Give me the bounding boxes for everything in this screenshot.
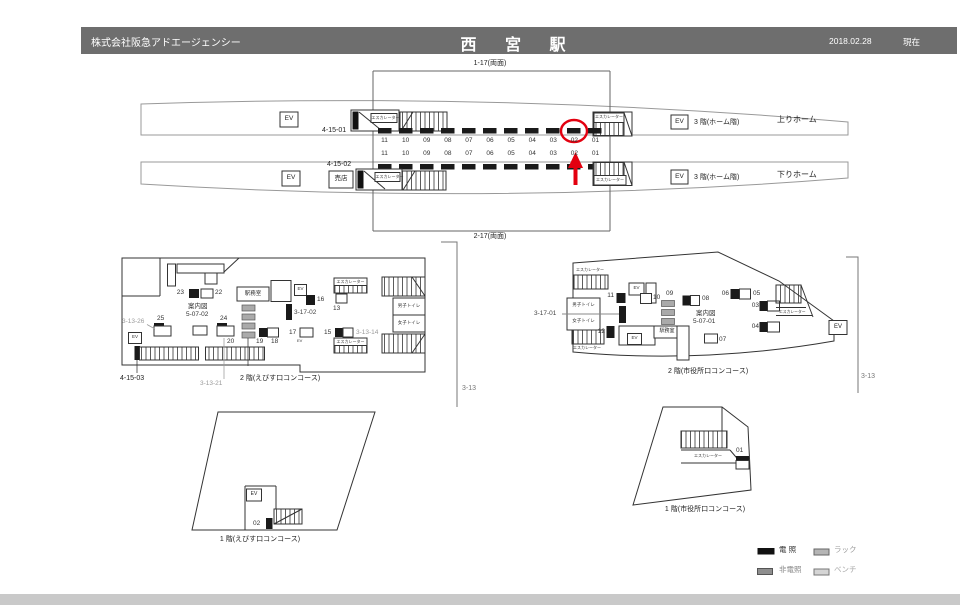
ebisu1f-stairs [274,509,302,524]
up-escalator-id: 4-15-01 [322,127,346,135]
down-escalator-id: 4-15-02 [327,161,351,169]
shiyakusho1f-escalator-label: エスカレーター [688,454,728,458]
down-escalator-tiny-label: エスカレーター [376,175,400,179]
ref-3-17-02: 3-17-02 [294,309,316,316]
panel-down-07 [462,164,476,170]
position-06: 06 [716,290,729,297]
shiyakusho2f-guide-map-id: 5-07-01 [693,318,715,325]
kiosk-label: 売店 [329,175,353,182]
panel-up-06 [483,128,497,134]
up-escalator-box [351,110,399,131]
ebisu2f-ev-17-label: EV [297,339,302,343]
legend-bench-swatch [814,569,829,575]
up-escalator-tiny-label: エスカレーター [372,116,397,120]
down-platform-name: 下りホーム [777,171,817,180]
panel-07 [705,334,718,343]
ref-3-13-21: 3-13-21 [200,380,222,387]
position-20: 20 [227,338,234,345]
panel-22 [201,289,213,298]
floorplan-linework [0,0,960,605]
panel-up-09 [420,128,434,134]
down-ev-label: EV [282,174,300,181]
panel-up-08 [441,128,455,134]
position-03: 03 [746,302,759,309]
shiyakusho2f-ev-c-label: EV [829,324,847,331]
down-stairs [402,171,446,190]
up-platform-position-numbers: 1110090807060504030201 [374,137,606,144]
shiyakusho2f-women-toilet-label: 女子トイレ [567,319,600,324]
panel-11 [617,293,626,303]
panel-up-05 [504,128,518,134]
panel-10 [641,294,652,304]
ebisu2f-ev-small-label: EV [295,287,307,292]
ebisu2f-men-toilet-label: 男子トイレ [393,304,425,309]
up-right-escalator-tiny-label: エスカレーター [594,115,624,119]
shiyakusho2f-escalator-mid-label: エスカレーター [779,310,806,314]
ref-4-15-03: 4-15-03 [120,375,144,383]
panel-25 [154,326,171,336]
panel-up-03 [546,128,560,134]
position-16: 16 [317,296,324,303]
position-13: 13 [333,305,340,312]
position-05: 05 [753,290,760,297]
shiyakusho2f-racks [662,301,675,325]
rack-icon [242,314,255,320]
up-floor-label: 3 階(ホーム階) [694,119,739,127]
rack-icon [662,319,675,325]
panel-up-07 [462,128,476,134]
down-ad-panels [378,164,602,170]
shiyakusho2f-guide-map-label: 案内図 [696,310,716,317]
position-10: 10 [653,294,660,301]
panel-up-10 [399,128,413,134]
shiyakusho2f-outline [573,252,834,356]
ebisu1f-ev-label: EV [247,492,262,498]
ebisu1f-title: 1 階(えびす口コンコース) [180,536,340,544]
ebisu2f-guide-map-id: 5-07-02 [186,311,208,318]
shiyakusho2f-escalator-bottom-label: エスカレーター [570,346,604,350]
ebisu2f-guide-map-label: 案内図 [188,303,208,310]
position-04: 04 [746,323,759,330]
shiyakusho2f-men-toilet-label: 男子トイレ [567,303,600,308]
shiyakusho2f-ev-a-label: EV [629,286,644,291]
panel-08a [683,296,691,306]
panel-up-01 [588,128,602,134]
panel-19 [259,328,267,337]
position-17: 17 [289,329,296,336]
panel-down-04 [525,164,539,170]
position-19: 19 [256,338,263,345]
panel-up-11 [378,128,392,134]
panel-18 [268,328,279,337]
down-floor-label: 3 階(ホーム階) [694,174,739,182]
legend-illuminated-swatch [758,548,775,555]
ebisu2f-escalator-a-label: エスカレーター [334,280,367,284]
ebisu-side-bracket [441,242,457,407]
shiyakusho-side-ref: 3-13 [861,373,875,381]
position-ebisu1f-02: 02 [253,520,260,527]
shiyakusho2f-office-label: 駅務室 [654,329,680,335]
position-shiyakusho1f-01: 01 [736,447,743,454]
legend-rack-label: ラック [834,546,857,554]
rack-icon [242,323,255,329]
panel-24-20 [217,326,234,336]
legend-non-illuminated-label: 非電照 [779,566,802,574]
bracket-label-top: 1-17(両面) [430,60,550,68]
position-18: 18 [271,338,278,345]
panel-up-02 [567,128,581,134]
shiyakusho2f-escalator-top-label: エスカレーター [573,268,607,272]
position-24: 24 [220,315,227,322]
up-ad-panels [378,128,602,134]
position-08: 08 [702,295,709,302]
panel-04b [768,322,780,332]
shiyakusho1f-title: 1 階(市役所口コンコース) [640,506,770,514]
panel-down-06 [483,164,497,170]
panel-down-05 [504,164,518,170]
panel-16 [306,295,315,305]
station-ad-map-page: 株式会社阪急アドエージェンシー 西 宮 駅 2018.02.28 現在 [0,0,960,605]
panel-23 [189,289,199,298]
rack-icon [242,332,255,338]
ebisu-side-ref: 3-13 [462,385,476,393]
panel-down-03 [546,164,560,170]
position-12: 12 [593,328,605,335]
bottom-border-strip [0,594,960,605]
panel-03a [760,301,768,311]
position-11: 11 [601,292,614,299]
shiyakusho-side-bracket [846,257,858,393]
panel-08b [691,296,700,306]
ebisu2f-escalator-b-label: エスカレーター [334,340,367,344]
legend-illuminated-label: 電 照 [779,546,796,554]
ref-3-13-14: 3-13-14 [356,329,378,336]
up-ev-label: EV [280,115,298,122]
panel-05 [740,289,751,299]
panel-3-17-01 [619,306,626,323]
ref-3-13-26: 3-13-26 [122,318,144,325]
ebisu2f-title: 2 階(えびす口コンコース) [240,375,320,383]
panel-ebisu1f-02 [266,518,273,529]
shiyakusho2f-title: 2 階(市役所口コンコース) [668,368,748,376]
panel-17 [300,328,313,337]
legend-rack-swatch [814,549,829,555]
panel-up-04 [525,128,539,134]
position-25: 25 [157,315,164,322]
ref-3-17-01: 3-17-01 [534,310,556,317]
down-right-ev-label: EV [671,173,688,180]
position-09: 09 [666,290,673,297]
down-right-escalator-tiny-label: エスカレーター [595,178,626,182]
ebisu2f-office-label: 駅務室 [237,291,269,297]
panel-15b [343,328,353,337]
position-15: 15 [324,329,331,336]
rack-icon [662,301,675,307]
position-22: 22 [215,289,222,296]
panel-down-09 [420,164,434,170]
rack-icon [242,305,255,311]
panel-06 [731,289,740,299]
panel-3-17-02 [286,304,292,320]
down-escalator-box [356,169,402,190]
panel-13 [336,294,347,303]
up-right-ev-label: EV [671,118,688,125]
bracket-label-bottom: 2-17(両面) [430,233,550,241]
legend-bench-label: ベンチ [834,566,857,574]
up-platform-name: 上りホーム [777,116,817,125]
ebisu2f-ev-wall-label: EV [129,335,142,340]
panel-04a [760,322,768,332]
rack-icon [662,310,675,316]
legend-non-illuminated-swatch [758,569,773,575]
panel-shiyakusho1f-01 [736,456,749,469]
panel-15 [335,328,343,337]
position-07: 07 [719,336,726,343]
ebisu2f-women-toilet-label: 女子トイレ [393,321,425,326]
guide-map-box [193,326,207,335]
down-platform-position-numbers: 1110090807060504030201 [374,150,606,157]
shiyakusho2f-ev-b-label: EV [628,336,642,341]
panel-12 [607,326,615,338]
panel-down-08 [441,164,455,170]
position-23: 23 [170,289,184,296]
